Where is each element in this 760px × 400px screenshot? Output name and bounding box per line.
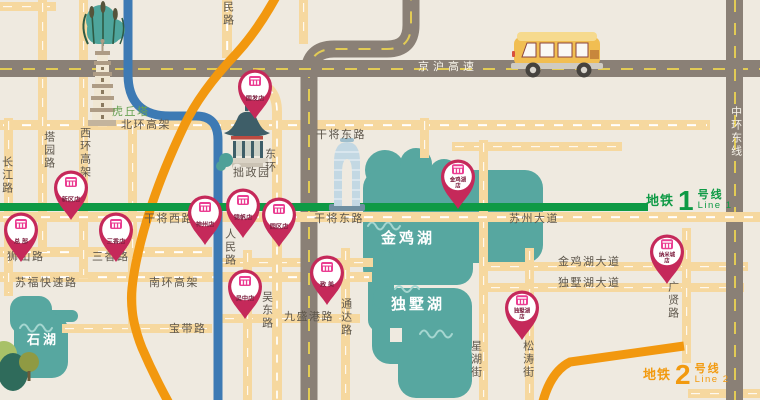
store-pin-label: 吴中店 [236, 294, 255, 302]
store-pin[interactable]: 锦帆店 [224, 188, 262, 245]
line2-prefix: 地铁 [643, 364, 671, 383]
storefront-logo-icon [239, 276, 251, 286]
road-label: 民路 [221, 1, 234, 27]
road-label: 干将东路 [316, 129, 366, 142]
road-label: 九盛港路 [284, 311, 334, 324]
store-pin-label: 致 美 [320, 280, 335, 288]
highway-jinghu [0, 60, 760, 77]
road-label: 金鸡湖大道 [558, 256, 621, 269]
storefront-logo-icon [452, 164, 464, 174]
store-pin[interactable]: 金鸡湖店 [439, 159, 477, 216]
store-pin[interactable]: 吴中店 [226, 269, 264, 326]
store-pin[interactable]: 新区店 [52, 170, 90, 227]
line1-latin: Line 1 [698, 201, 733, 211]
road-label: 拙政园 [233, 167, 271, 180]
road-label: 星湖街 [469, 340, 482, 379]
store-pin-label: 店 [455, 181, 461, 189]
lake-label: 金鸡湖 [381, 230, 435, 247]
store-pin[interactable]: 独墅湖店 [503, 290, 541, 347]
gate-of-the-orient-icon [329, 138, 365, 211]
metro-line2-label: 地铁 2 号线 Line 2 [643, 363, 729, 387]
store-pin-label: 店 [519, 312, 525, 320]
road-label: 苏州大道 [509, 213, 559, 226]
storefront-logo-icon [661, 239, 673, 249]
road-label: 苏福快速路 [15, 277, 78, 290]
road-label: 北环高架 [121, 119, 171, 132]
road-label: 塔园路 [42, 131, 55, 170]
store-pin-label: 三香店 [107, 237, 126, 245]
store-pin-label: 锦帆店 [234, 213, 253, 221]
storefront-logo-icon [199, 202, 211, 212]
store-pin-label: 总 部 [14, 237, 29, 245]
line1-number: 1 [678, 189, 694, 213]
road-label: 京沪高速 [418, 61, 478, 74]
line2-number: 2 [675, 363, 691, 387]
storefront-logo-icon [516, 295, 528, 305]
road-label: 中环东线 [729, 106, 742, 158]
road-segment [0, 2, 56, 11]
storefront-logo-icon [15, 219, 27, 229]
road-segment [420, 118, 429, 158]
road-segment [299, 0, 308, 44]
storefront-logo-icon [249, 76, 261, 86]
line1-prefix: 地铁 [646, 190, 674, 209]
store-pin-label: 国发店 [246, 94, 265, 102]
suzhou-store-map: 地铁 1 号线 Line 1 地铁 2 号线 Line 2 京沪高速中环东线北环… [0, 0, 760, 400]
lake-label: 独墅湖 [391, 296, 445, 313]
store-pin[interactable]: 纳米城店 [648, 234, 686, 291]
storefront-logo-icon [273, 204, 285, 214]
metro-line1-path [0, 203, 648, 211]
road-label: 长江路 [0, 156, 13, 195]
storefront-logo-icon [321, 262, 333, 272]
store-pin-label: 独墅湖 [513, 306, 531, 314]
hills-trees-icon [0, 341, 39, 391]
storefront-logo-icon [110, 219, 122, 229]
store-pin[interactable]: 三香店 [97, 212, 135, 269]
road-label: 南环高架 [149, 277, 199, 290]
road-label: 宝带路 [169, 323, 207, 336]
road-label: 虎丘塔 [112, 106, 150, 119]
store-pin[interactable]: 致 美 [308, 255, 346, 312]
metro-line1-label: 地铁 1 号线 Line 1 [646, 189, 732, 213]
line2-latin: Line 2 [695, 375, 730, 385]
store-pin[interactable]: 国发店 [236, 69, 274, 126]
storefront-logo-icon [237, 195, 249, 205]
store-pin-label: 神州店 [196, 220, 215, 228]
storefront-logo-icon [65, 177, 77, 187]
store-pin-label: 金鸡湖 [449, 175, 467, 183]
store-pin-label: 纳米城 [659, 250, 676, 258]
store-pin-label: 店 [664, 256, 670, 264]
reeds-icon [83, 1, 125, 46]
lake-label: 石湖 [27, 333, 59, 348]
road-segment [452, 142, 622, 151]
store-pin-label: 园区店 [270, 222, 289, 230]
store-pin[interactable]: 总 部 [2, 212, 40, 269]
road-segment [688, 389, 760, 398]
road-label: 独墅湖大道 [558, 277, 621, 290]
store-pin-label: 新区店 [62, 195, 81, 203]
store-pin[interactable]: 园区店 [260, 197, 298, 254]
store-pin[interactable]: 神州店 [186, 195, 224, 252]
road-label: 干将东路 [314, 213, 364, 226]
